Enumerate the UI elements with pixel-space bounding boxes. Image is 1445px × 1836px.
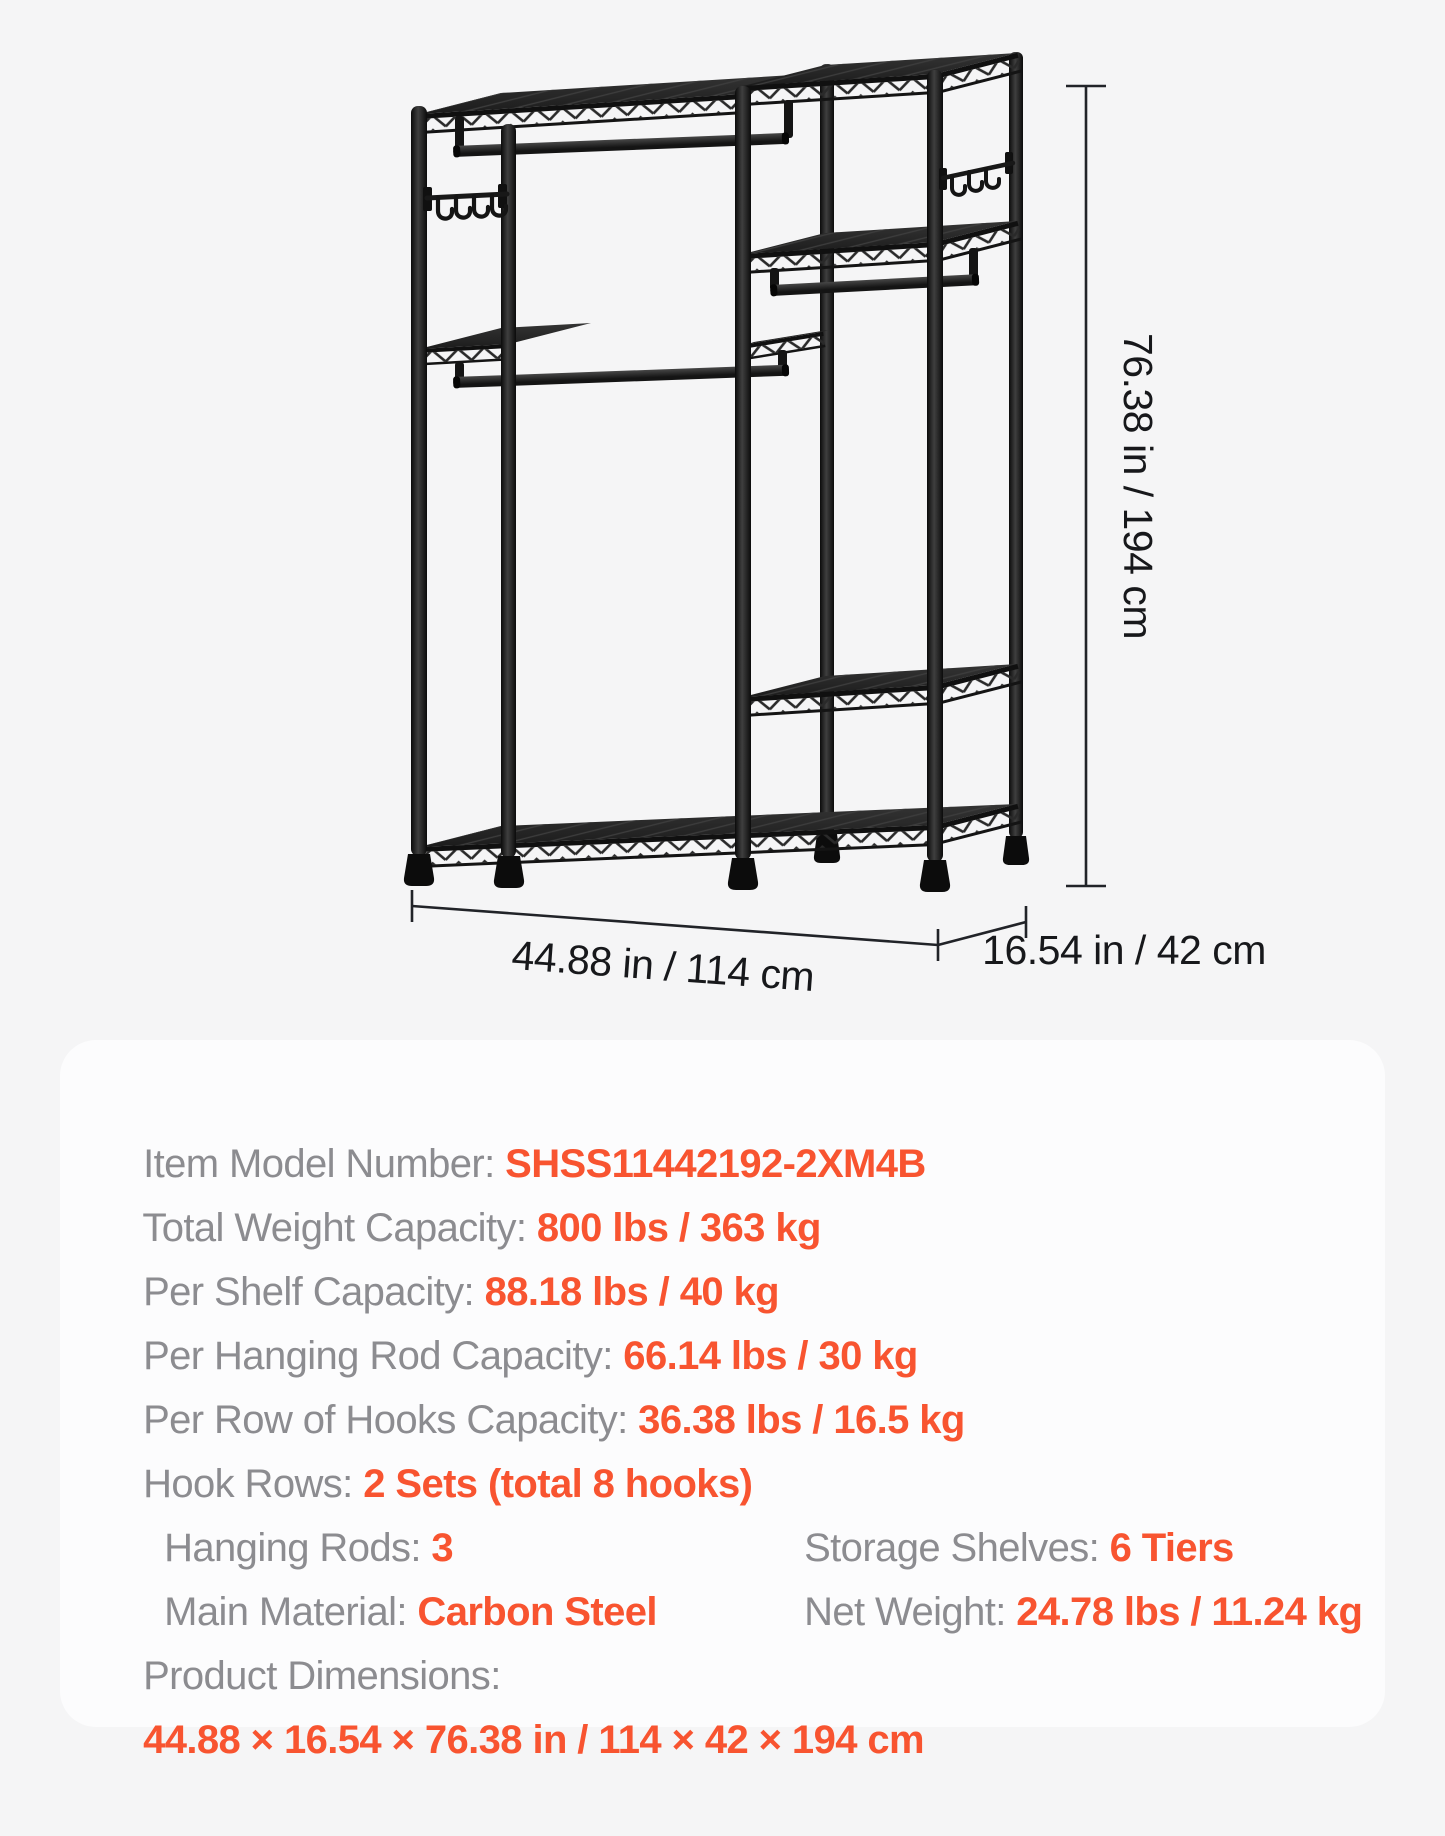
middle-small-shelf (748, 330, 828, 359)
front-foot (920, 860, 950, 892)
rear-posts (814, 52, 1029, 865)
right-hook-row (939, 152, 1013, 195)
hook (474, 196, 488, 217)
rod-bracket (784, 100, 793, 138)
spec-value: 66.14 lbs / 30 kg (623, 1334, 917, 1378)
spec-label: Main Material: (164, 1590, 417, 1634)
spec-cell: Net Weight: 24.78 lbs / 11.24 kg (741, 1516, 1362, 1708)
front-foot (728, 858, 758, 890)
spec-value: Carbon Steel (417, 1590, 657, 1634)
spec-value: SHSS11442192-2XM4B (505, 1142, 926, 1186)
hanging-rod-right (770, 274, 979, 297)
product-spec-page: { "page": { "background": "#f5f5f6" }, "… (0, 0, 1445, 1806)
spec-label: Per Hanging Rod Capacity: (143, 1334, 623, 1378)
spec-label: Total Weight Capacity: (142, 1206, 537, 1250)
spec-value: 36.38 lbs / 16.5 kg (638, 1398, 965, 1442)
spec-row-model: Item Model Number: SHSS11442192-2XM4B (101, 1068, 1345, 1132)
spec-row-rods-shelves: Hanging Rods: 3 Storage Shelves: 6 Tiers (101, 1452, 1345, 1516)
width-dimension-label: 44.88 in / 114 cm (510, 932, 816, 1000)
spec-label: Per Row of Hooks Capacity: (143, 1398, 638, 1442)
spec-label: Item Model Number: (143, 1142, 505, 1186)
spec-label: Product Dimensions: (143, 1654, 501, 1698)
spec-label: Per Shelf Capacity: (143, 1270, 485, 1314)
hook (952, 176, 965, 195)
spec-panel: Item Model Number: SHSS11442192-2XM4B To… (60, 1040, 1385, 1727)
spec-value: 44.88 × 16.54 × 76.38 in / 114 × 42 × 19… (143, 1718, 924, 1762)
hook (969, 172, 982, 191)
spec-value: 24.78 lbs / 11.24 kg (1016, 1590, 1362, 1634)
width-dimension-line (412, 906, 938, 945)
hook (986, 169, 999, 188)
hook (456, 197, 470, 218)
spec-value: 88.18 lbs / 40 kg (485, 1270, 779, 1314)
rod-bracket (969, 248, 978, 278)
right-middle-shelf (743, 221, 1022, 274)
left-hook-row (423, 184, 507, 219)
front-foot (404, 854, 434, 886)
depth-dimension-label: 16.54 in / 42 cm (982, 927, 1266, 973)
height-dimension-label: 76.38 in / 194 cm (1115, 333, 1161, 639)
spec-row-material-weight: Main Material: Carbon Steel Net Weight: … (101, 1516, 1345, 1580)
hook (438, 198, 452, 219)
spec-label: Net Weight: (804, 1590, 1016, 1634)
front-foot (494, 856, 524, 888)
spec-value: 800 lbs / 363 kg (537, 1206, 821, 1250)
garment-rack-illustration: 76.38 in / 194 cm 44.88 in / 114 cm 16.5… (0, 0, 1445, 1010)
rear-foot (1003, 836, 1029, 865)
right-top-shelf (743, 53, 1022, 106)
right-lower-shelf (743, 664, 1022, 717)
